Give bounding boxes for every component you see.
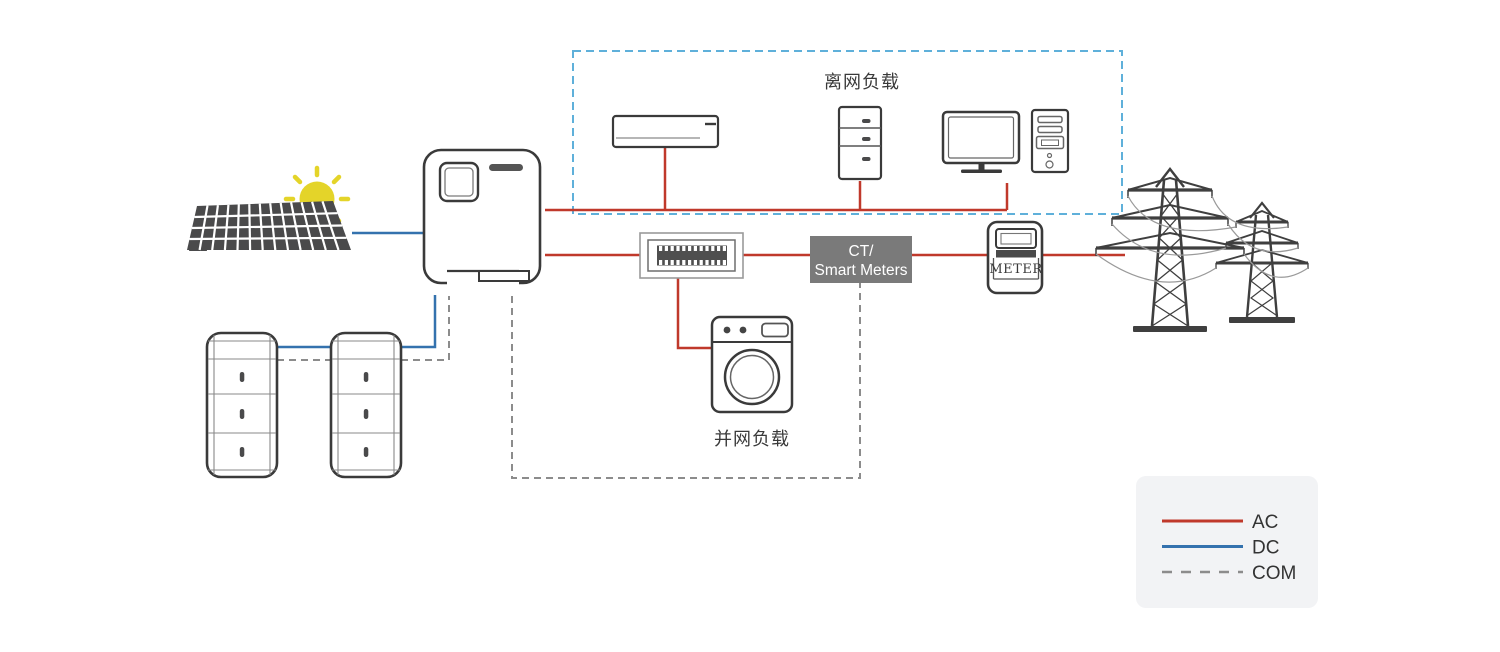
offgrid-loads-label: 离网负载 — [824, 72, 900, 92]
distribution-box-icon — [640, 233, 743, 278]
inverter-display-icon — [440, 163, 478, 201]
computer-tower-icon — [1032, 110, 1068, 172]
ct-smart-meter-box: CT/ Smart Meters — [810, 236, 912, 283]
battery-com-line — [401, 296, 449, 360]
wiring — [277, 146, 1125, 478]
legend: AC DC COM — [1136, 476, 1318, 608]
inverter-ct-com-line — [512, 283, 860, 478]
ct-box-label-line1: CT/ — [849, 243, 875, 260]
transmission-tower-icon — [1096, 169, 1308, 332]
legend-com-label: COM — [1252, 563, 1296, 584]
battery-dc-line — [401, 295, 435, 347]
refrigerator-icon — [839, 107, 881, 179]
ac-washer-line — [678, 278, 712, 348]
battery-tower-icon — [207, 333, 277, 477]
air-conditioner-icon — [613, 116, 718, 147]
legend-dc-label: DC — [1252, 538, 1279, 559]
battery-tower-icon — [331, 333, 401, 477]
meter-label: METER — [989, 262, 1043, 277]
ongrid-loads-label: 并网负载 — [714, 429, 790, 449]
ct-box-label-line2: Smart Meters — [814, 262, 907, 279]
solar-panel-icon — [187, 201, 351, 251]
inverter-vent-icon — [489, 164, 523, 171]
legend-ac-label: AC — [1252, 512, 1278, 533]
washing-machine-icon — [712, 317, 792, 412]
inverter-icon — [424, 150, 540, 286]
energy-system-diagram: CT/ Smart Meters METER — [0, 0, 1500, 652]
computer-monitor-icon — [943, 112, 1019, 173]
energy-meter-icon: METER — [988, 222, 1043, 293]
